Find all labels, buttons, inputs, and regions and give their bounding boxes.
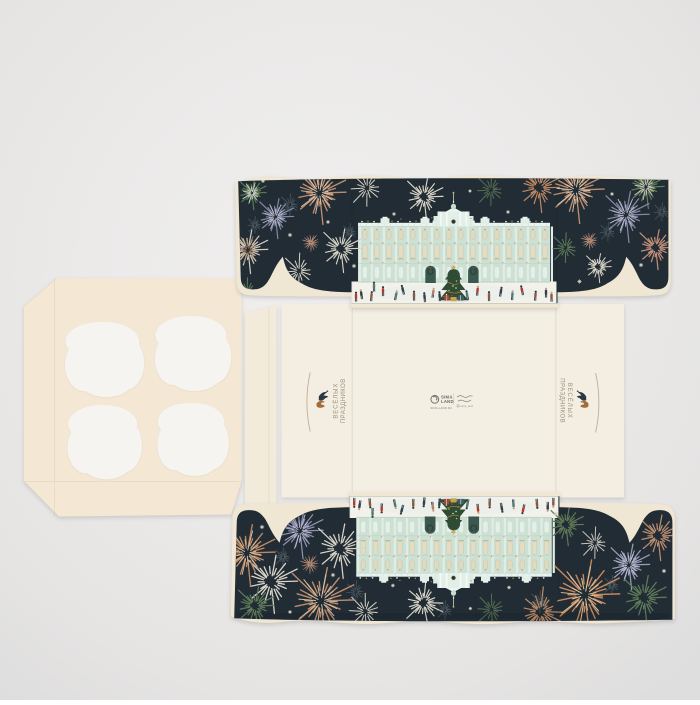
svg-text:ВЕСЁЛЫХ: ВЕСЁЛЫХ <box>332 383 339 419</box>
svg-text:ПРАЗДНИКОВ: ПРАЗДНИКОВ <box>341 378 347 423</box>
svg-text:sima_land: sima_land <box>461 405 474 408</box>
svg-text:LAND: LAND <box>441 399 454 404</box>
svg-text:ВЕСЁЛЫХ: ВЕСЁЛЫХ <box>566 383 573 419</box>
svg-text:ПРАЗДНИКОВ: ПРАЗДНИКОВ <box>559 378 565 423</box>
svg-text:SIMA-LAND.RU: SIMA-LAND.RU <box>431 406 453 410</box>
